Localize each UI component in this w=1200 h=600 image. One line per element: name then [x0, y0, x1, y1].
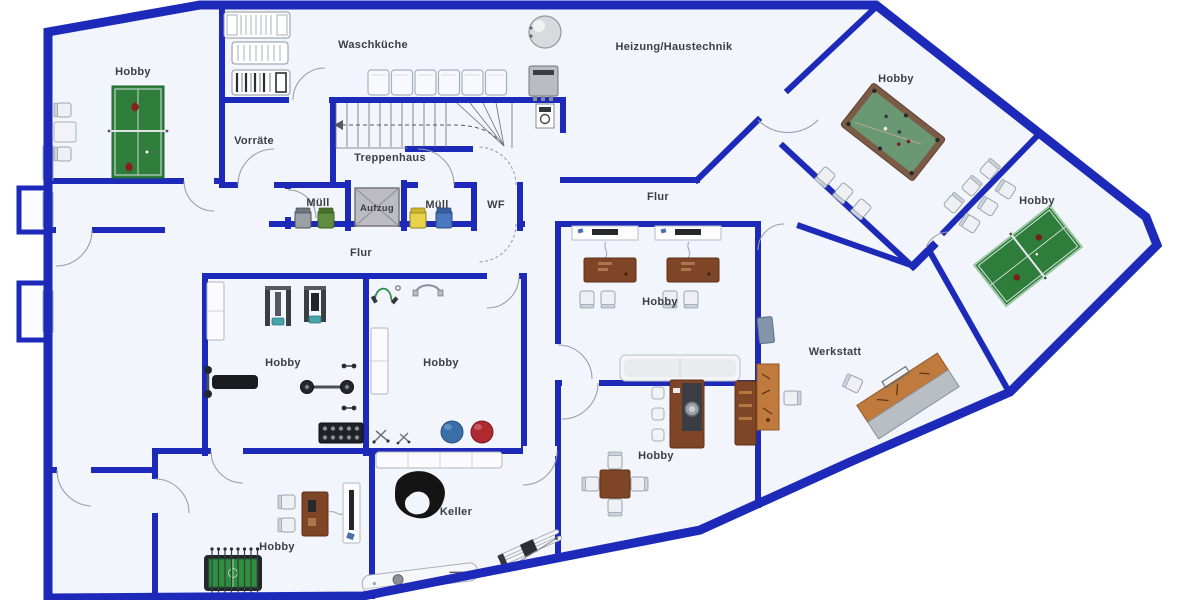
bar-stool — [652, 387, 664, 399]
exercise-ball-blue-icon — [441, 421, 463, 443]
room-label-wf: WF — [487, 199, 505, 211]
room-label-flur-west: Flur — [350, 247, 372, 259]
room-label-werkstatt: Werkstatt — [809, 346, 862, 358]
sideboard-icon — [376, 452, 502, 468]
room-label-hobby-billiard: Hobby — [878, 73, 914, 85]
dining-table — [600, 470, 630, 498]
workbench-icon — [757, 364, 779, 430]
room-label-waschkueche: Waschküche — [338, 39, 408, 51]
room-label-flur-east: Flur — [647, 191, 669, 203]
dumbbell-rack-icon — [319, 423, 363, 443]
room-label-heizung: Heizung/Haustechnik — [616, 41, 734, 53]
water-meter-icon — [536, 104, 554, 128]
drying-rack-icon — [232, 70, 290, 95]
floorplan-svg: Hobby Waschküche Heizung/Haustechnik Hob… — [0, 0, 1200, 600]
room-label-keller: Keller — [440, 506, 473, 518]
floor-mat — [757, 316, 775, 343]
chair — [54, 103, 71, 117]
foosball-table-icon — [204, 547, 262, 598]
bar-stool — [652, 408, 664, 420]
heating-unit-icon — [529, 66, 558, 101]
room-label-aufzug: Aufzug — [360, 203, 394, 214]
room-label-hobby-bar: Hobby — [638, 450, 674, 462]
room-label-muell-west: Müll — [306, 197, 329, 209]
floorplan-canvas: Hobby Waschküche Heizung/Haustechnik Hob… — [0, 0, 1200, 600]
boiler-tank-icon — [529, 16, 561, 48]
cabinet-icon — [735, 381, 756, 445]
room-label-hobby-games: Hobby — [259, 541, 295, 553]
room-label-hobby-tt-east: Hobby — [1019, 195, 1055, 207]
drying-rack-icon — [224, 12, 290, 38]
room-label-hobby-gym: Hobby — [265, 357, 301, 369]
bar-counter-icon — [670, 380, 704, 448]
room-label-treppenhaus: Treppenhaus — [354, 152, 426, 164]
strength-machine-icon — [265, 286, 291, 326]
side-table — [54, 122, 76, 142]
waste-bin-gray-icon — [295, 208, 311, 228]
room-label-hobby-office: Hobby — [642, 296, 678, 308]
chair — [54, 147, 71, 161]
room-label-hobby-nw: Hobby — [115, 66, 151, 78]
waste-bin-green-icon — [318, 208, 334, 228]
room-label-vorraete: Vorräte — [234, 135, 274, 147]
waste-bin-yellow-icon — [410, 208, 426, 228]
couch-icon — [620, 355, 740, 381]
table-tennis-table-icon — [108, 86, 169, 178]
waste-bin-blue-icon — [436, 208, 452, 228]
room-label-hobby-fitness: Hobby — [423, 357, 459, 369]
drying-rack-icon — [232, 42, 288, 64]
bar-stool — [652, 429, 664, 441]
exercise-ball-red-icon — [471, 421, 493, 443]
room-label-muell-east: Müll — [425, 199, 448, 211]
